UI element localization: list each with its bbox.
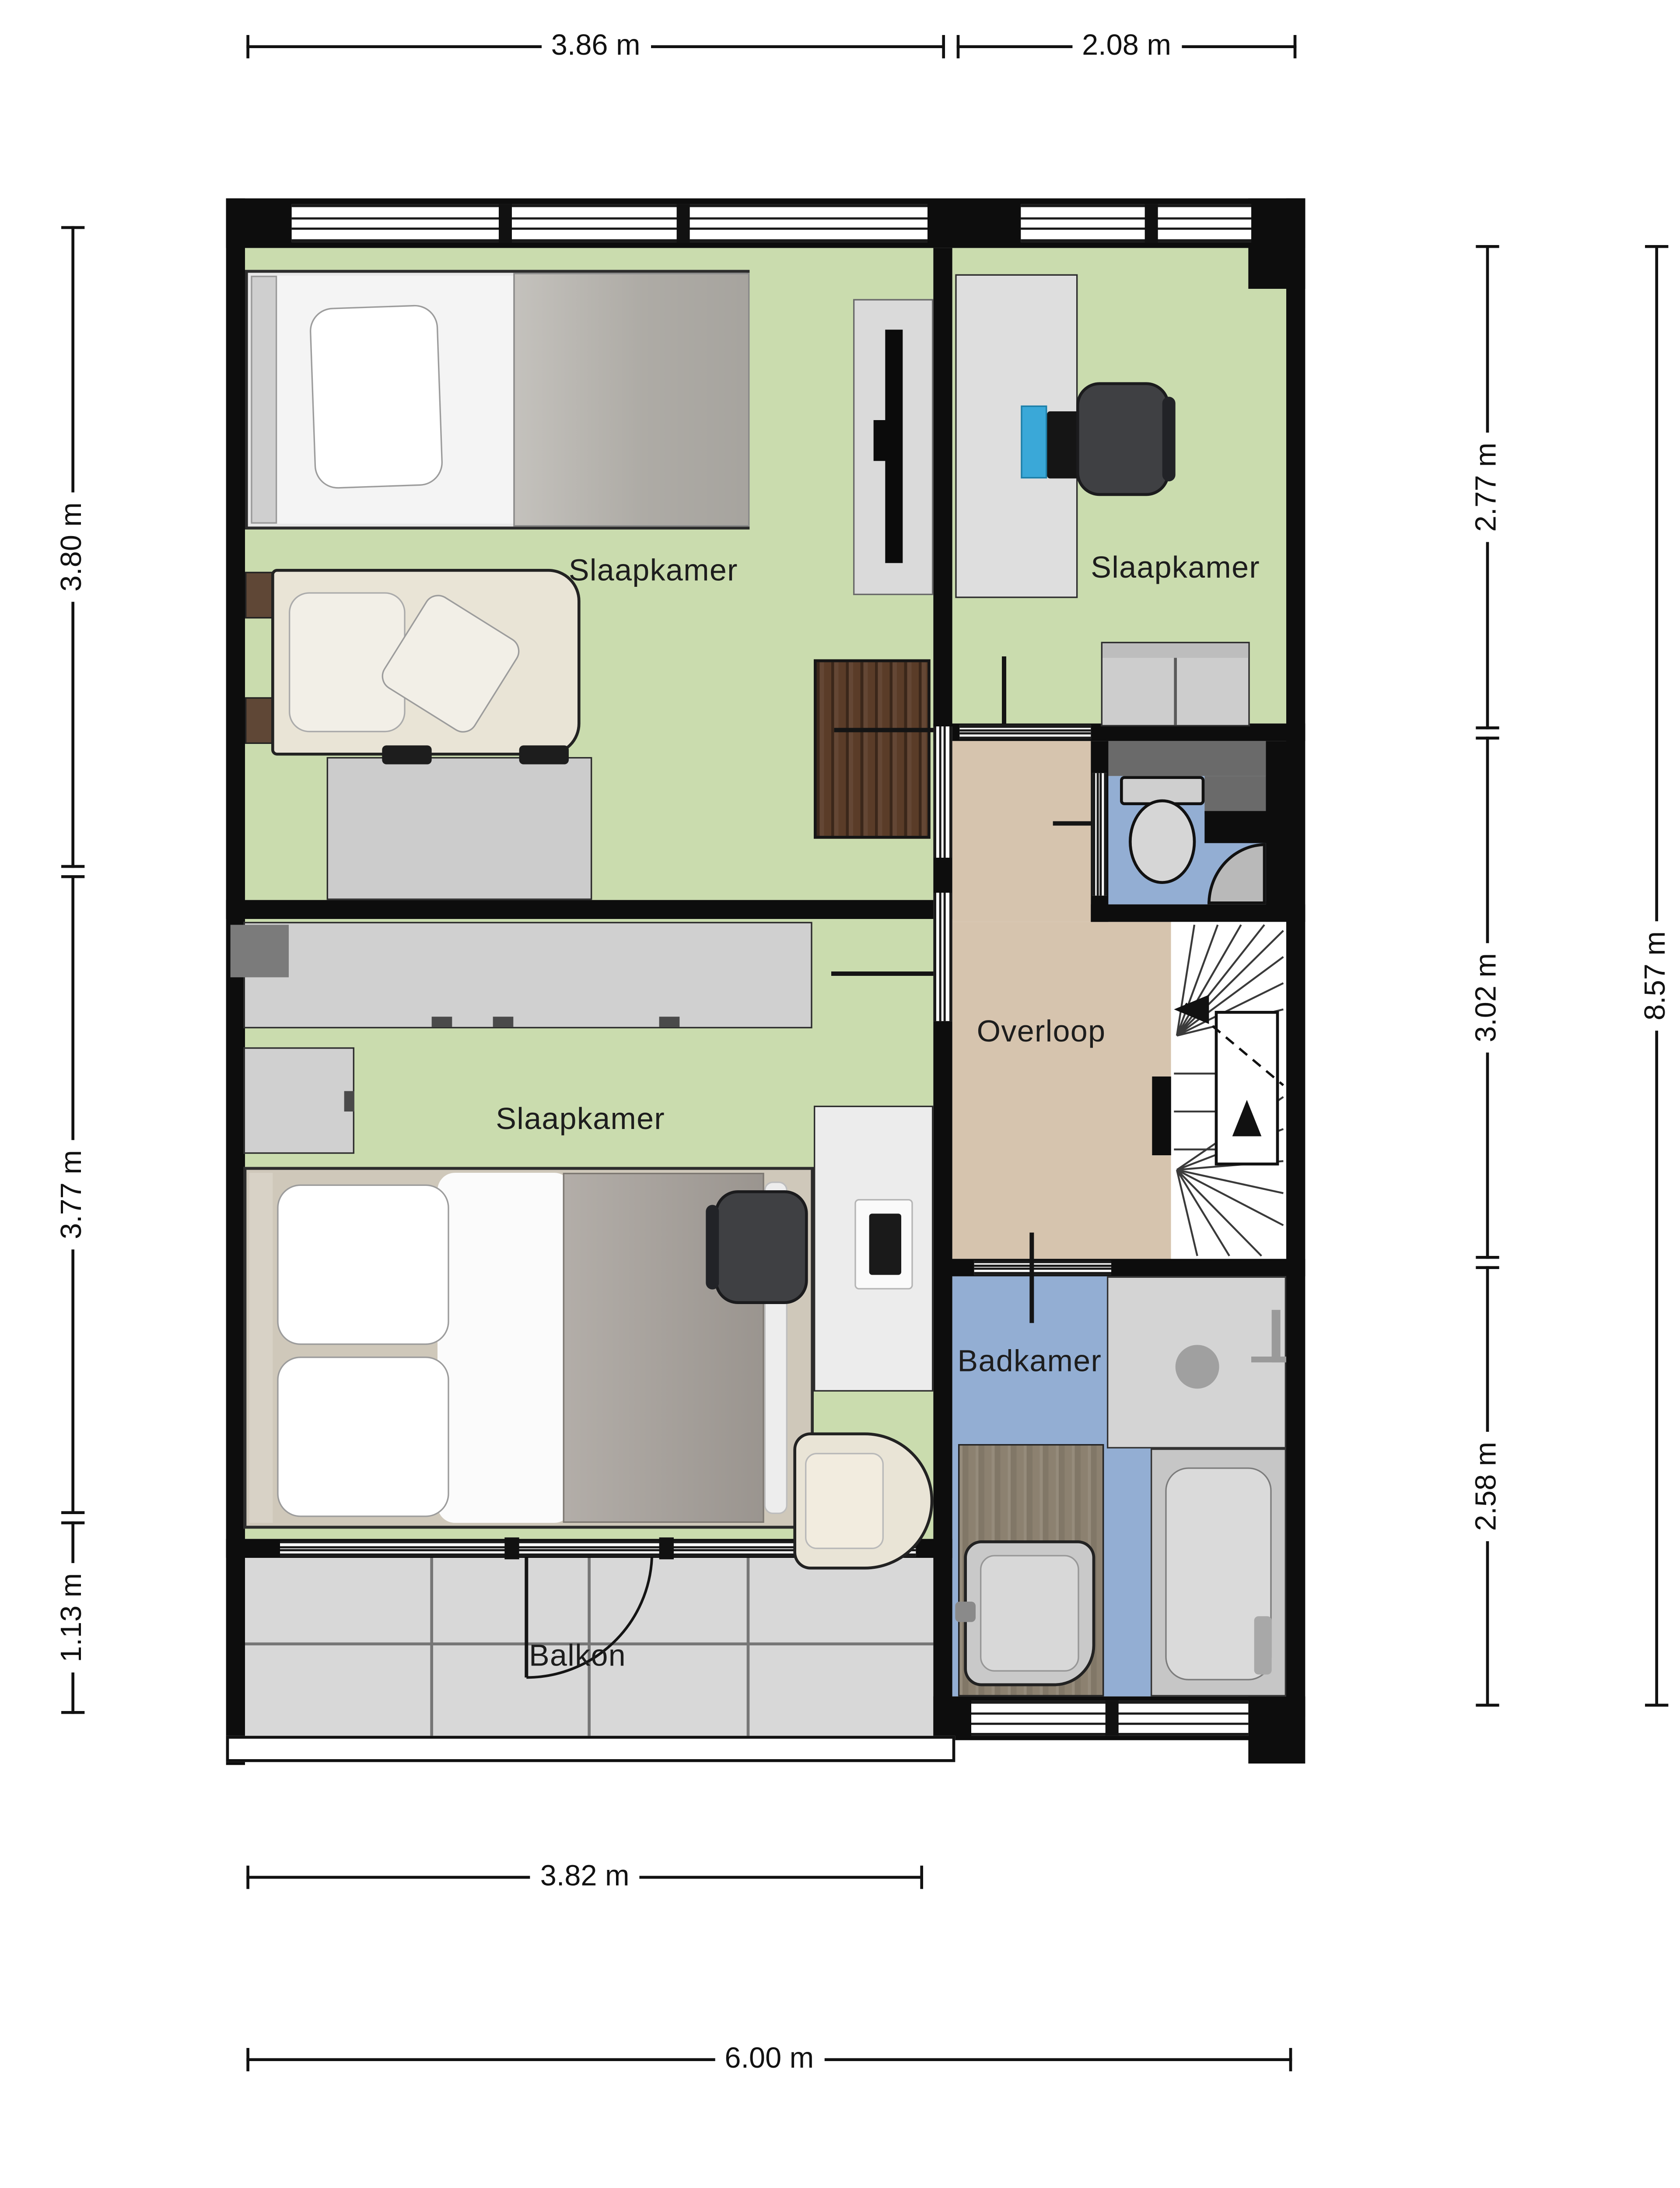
laptop-lid	[1021, 406, 1047, 479]
door-leaf	[831, 971, 933, 976]
dimension-right-total: 8.57 m	[1641, 245, 1673, 1707]
window-mullion	[1145, 204, 1158, 242]
room-label-slaapkamer-3: Slaapkamer	[496, 1103, 665, 1138]
room-landing-main	[952, 922, 1171, 1259]
bed-headboard	[249, 1173, 273, 1523]
footer: Aan de plattegronden kunnen geen rechten…	[383, 2182, 1148, 2188]
door-landing-bedroom1	[933, 726, 952, 858]
floorplan-page: Slaapkamer Slaapkamer Slaapkamer Overloo…	[0, 0, 1680, 2188]
wardrobe-handle	[432, 1017, 452, 1027]
table-clamp	[519, 745, 569, 764]
dresser-top-shade	[1102, 643, 1248, 658]
room-landing-upper	[952, 741, 1091, 922]
balcony-tile-line	[430, 1558, 432, 1736]
wall-toilet-right	[1266, 741, 1286, 922]
room-label-badkamer: Badkamer	[957, 1345, 1102, 1380]
shower-drain	[1176, 1345, 1219, 1389]
lounge-chair-leg	[245, 572, 274, 619]
office-chair	[1076, 382, 1169, 496]
dimension-left-1: 3.80 m	[57, 226, 89, 868]
wooden-desk	[814, 659, 931, 839]
wall-shaft-ledge	[1204, 811, 1269, 843]
duct-shaft	[1106, 741, 1266, 776]
shower-fixture	[1251, 1357, 1286, 1362]
door-leaf	[1053, 821, 1091, 826]
armchair-cushion	[805, 1453, 884, 1549]
balcony-railing	[226, 1736, 955, 1762]
window-mullion	[677, 204, 690, 242]
door-landing-bathroom	[974, 1260, 1111, 1275]
laptop-keyboard	[869, 1213, 901, 1275]
balcony-tile-line	[747, 1558, 749, 1736]
wall-left	[226, 198, 245, 1765]
stair-core	[1216, 1012, 1277, 1164]
radiator	[231, 925, 289, 977]
door-leaf	[1002, 656, 1006, 725]
vanity-sink-basin	[980, 1555, 1079, 1672]
bed-headboard	[251, 276, 277, 524]
stairs	[1171, 922, 1286, 1259]
toilet-bowl	[1129, 799, 1196, 884]
dimension-bottom-1: 3.82 m	[246, 1861, 923, 1893]
table-clamp	[382, 745, 431, 764]
door-landing-toilet	[1092, 773, 1107, 896]
bed-pillow	[309, 304, 444, 489]
tv-mount	[874, 420, 894, 461]
lounge-chair-leg	[245, 697, 274, 744]
wall-right	[1286, 198, 1305, 1717]
footer-disclaimer: Aan de plattegronden kunnen geen rechten…	[383, 2182, 1148, 2188]
bathtub-faucet	[1254, 1616, 1272, 1674]
shower-fixture	[1272, 1310, 1281, 1362]
dimension-top-2: 2.08 m	[957, 31, 1297, 63]
bed-pillow	[277, 1357, 449, 1517]
window-bedroom1-top	[292, 204, 927, 242]
office-chair-backrest	[706, 1205, 719, 1289]
wardrobe-handle	[493, 1017, 514, 1027]
room-label-balkon: Balkon	[529, 1640, 626, 1675]
window-mullion	[499, 204, 512, 242]
dimension-right-3: 2.58 m	[1471, 1266, 1503, 1707]
room-label-slaapkamer-2: Slaapkamer	[1091, 551, 1260, 586]
bed-duvet	[513, 273, 749, 526]
window-mullion	[1106, 1701, 1119, 1736]
wall-corner-top-right	[1248, 198, 1305, 289]
wardrobe	[244, 922, 812, 1028]
dimension-bottom-2: 6.00 m	[246, 2044, 1292, 2076]
dimension-top-1: 3.86 m	[246, 31, 945, 63]
wall-corner-bottom-right	[1248, 1697, 1305, 1764]
bed-pillow	[277, 1185, 449, 1345]
dimension-left-3: 1.13 m	[57, 1522, 89, 1714]
door-landing-bedroom3	[933, 893, 952, 1021]
door-landing-bedroom2	[959, 725, 1091, 740]
work-table	[327, 757, 592, 900]
office-chair-backrest	[1162, 397, 1176, 481]
sink-faucet	[955, 1602, 976, 1622]
office-chair	[714, 1190, 808, 1304]
bed-sheet	[437, 1173, 572, 1523]
dimension-right-2: 3.02 m	[1471, 736, 1503, 1259]
side-cabinet-handle	[344, 1091, 354, 1112]
window-bedroom2-top	[1021, 204, 1251, 242]
dimension-right-1: 2.77 m	[1471, 245, 1503, 729]
room-label-overloop: Overloop	[977, 1015, 1106, 1050]
room-label-slaapkamer-1: Slaapkamer	[569, 554, 738, 589]
dimension-left-2: 3.77 m	[57, 875, 89, 1514]
wall-bedrooms-divider	[226, 900, 952, 919]
duct-shaft-side	[1204, 776, 1266, 814]
side-cabinet	[244, 1047, 354, 1154]
door-leaf	[1029, 1233, 1034, 1323]
wardrobe-handle	[659, 1017, 680, 1027]
door-leaf	[834, 728, 934, 732]
